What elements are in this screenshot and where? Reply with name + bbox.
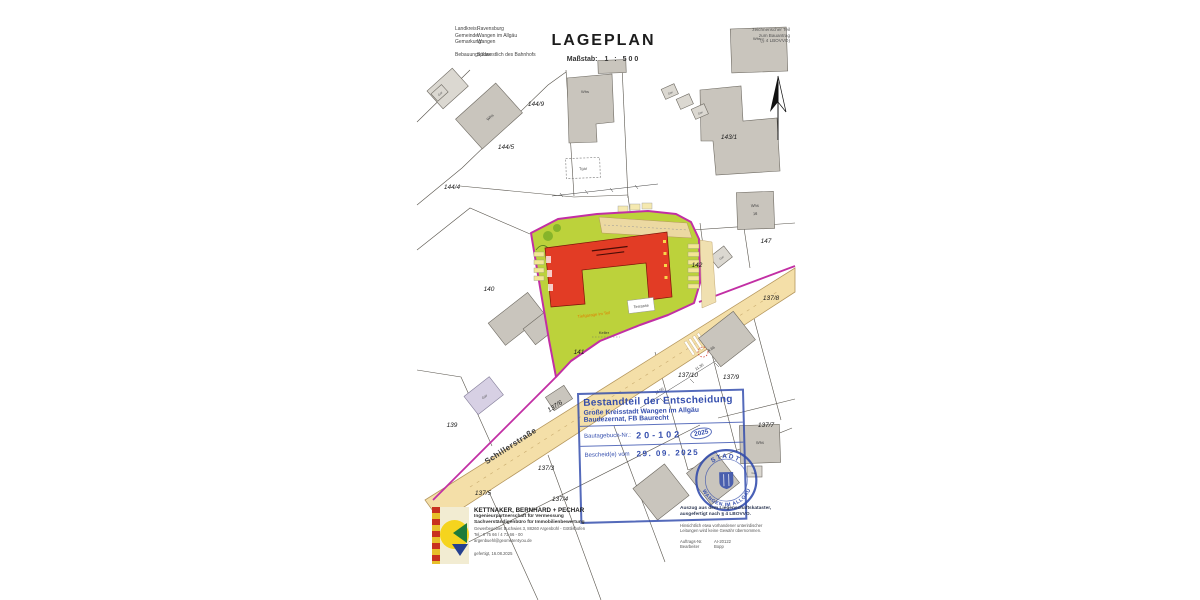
keller-label: Keller [599,330,610,335]
parcel-label: 141 [574,349,585,356]
building-whs-144-5: Whs [456,83,523,149]
building-label: Whs [581,89,589,94]
parcel-label: 137/4 [552,496,569,503]
editor-row: Bearbeiter Bopp [680,544,798,549]
editor-label: Bearbeiter [680,544,714,549]
building-label: Whs [751,203,759,208]
created-date: gefertigt, 16.08.2025 [474,551,624,556]
parcel-label: 142 [692,262,703,269]
editor-value: Bopp [714,544,724,549]
seal-coat-of-arms [719,472,733,489]
city-seal: STADT WANGEN IM ALLGÄU [692,446,760,514]
right-line-3: (§ 4 LBOVVO) [728,38,790,44]
building-label: Tgar [579,166,588,171]
title-block-right: zeichnerischer Teil zum Bauantrag (§ 4 L… [728,27,790,44]
parcel-label: 140 [484,286,495,293]
notes-block: Auszug aus dem Liegenschaftskataster, au… [680,506,798,550]
company-line2: Sachverständigenbüro für Immobilienbewer… [474,520,624,526]
building-whs-16: Whs 16 [736,191,774,229]
dimension-label: 11.30 [694,363,704,371]
stamp-number-year: 2025 [689,426,713,441]
parcel-label: 139 [447,422,458,429]
parcel-label: 144/4 [444,184,461,191]
company-phone: Tel.: 0 75 66 / 4 73 66 - 00 [474,532,624,537]
tgar-outline: Tgar [566,157,601,178]
parcel-label: 137/5 [475,490,492,497]
svg-text:STADT: STADT [710,453,742,465]
parcel-label: 137/7 [758,422,775,429]
parcel-label: 137/8 [763,295,780,302]
company-address: Gewerbegebiet Buchwies 3, 88260 Argenbüh… [474,526,624,531]
parcel-label: 137/10 [678,372,698,379]
approval-stamp: Bestandteil der Entscheidung Große Kreis… [577,389,747,524]
stamp-date-label: Bescheid(e) vom [585,451,637,458]
company-name: KETTNAKER, BERNHARD + PECHAR [474,507,624,514]
logo-blue-triangle [452,544,468,556]
logo-green-triangle [453,523,467,543]
company-block: KETTNAKER, BERNHARD + PECHAR Ingenieurpa… [474,507,624,556]
logo-checker-strip [432,507,440,564]
parcel-label: 137/3 [538,465,555,472]
stamp-number-label: Bautagebuch-Nr.: [584,432,636,439]
building-143-1 [700,86,780,175]
scale-value: 1 : 500 [604,56,640,63]
stamp-number-value: 20-102 [636,429,682,440]
scale-label: Maßstab: [567,56,598,63]
building-gar-purple: Gar [464,377,503,415]
parcel-label: 143/1 [721,134,738,141]
parcel-label: 144/5 [498,144,515,151]
parcel-label: 144/9 [528,101,545,108]
building-label: Whs [756,440,764,445]
seal-top-text: STADT [710,453,742,465]
company-email: argenbuehl@geometer4you.de [474,538,624,543]
parcel-label: 147 [761,238,772,245]
parcel-label: 137/9 [723,374,740,381]
company-logo [432,507,469,564]
scale-line: Maßstab:1 : 500 [417,56,790,63]
lageplan-page: Whs Gar Whs Whs Gar Gar Whs 16 [0,0,1200,600]
stamp-date-value: 29. 09. 2025 [636,448,699,459]
